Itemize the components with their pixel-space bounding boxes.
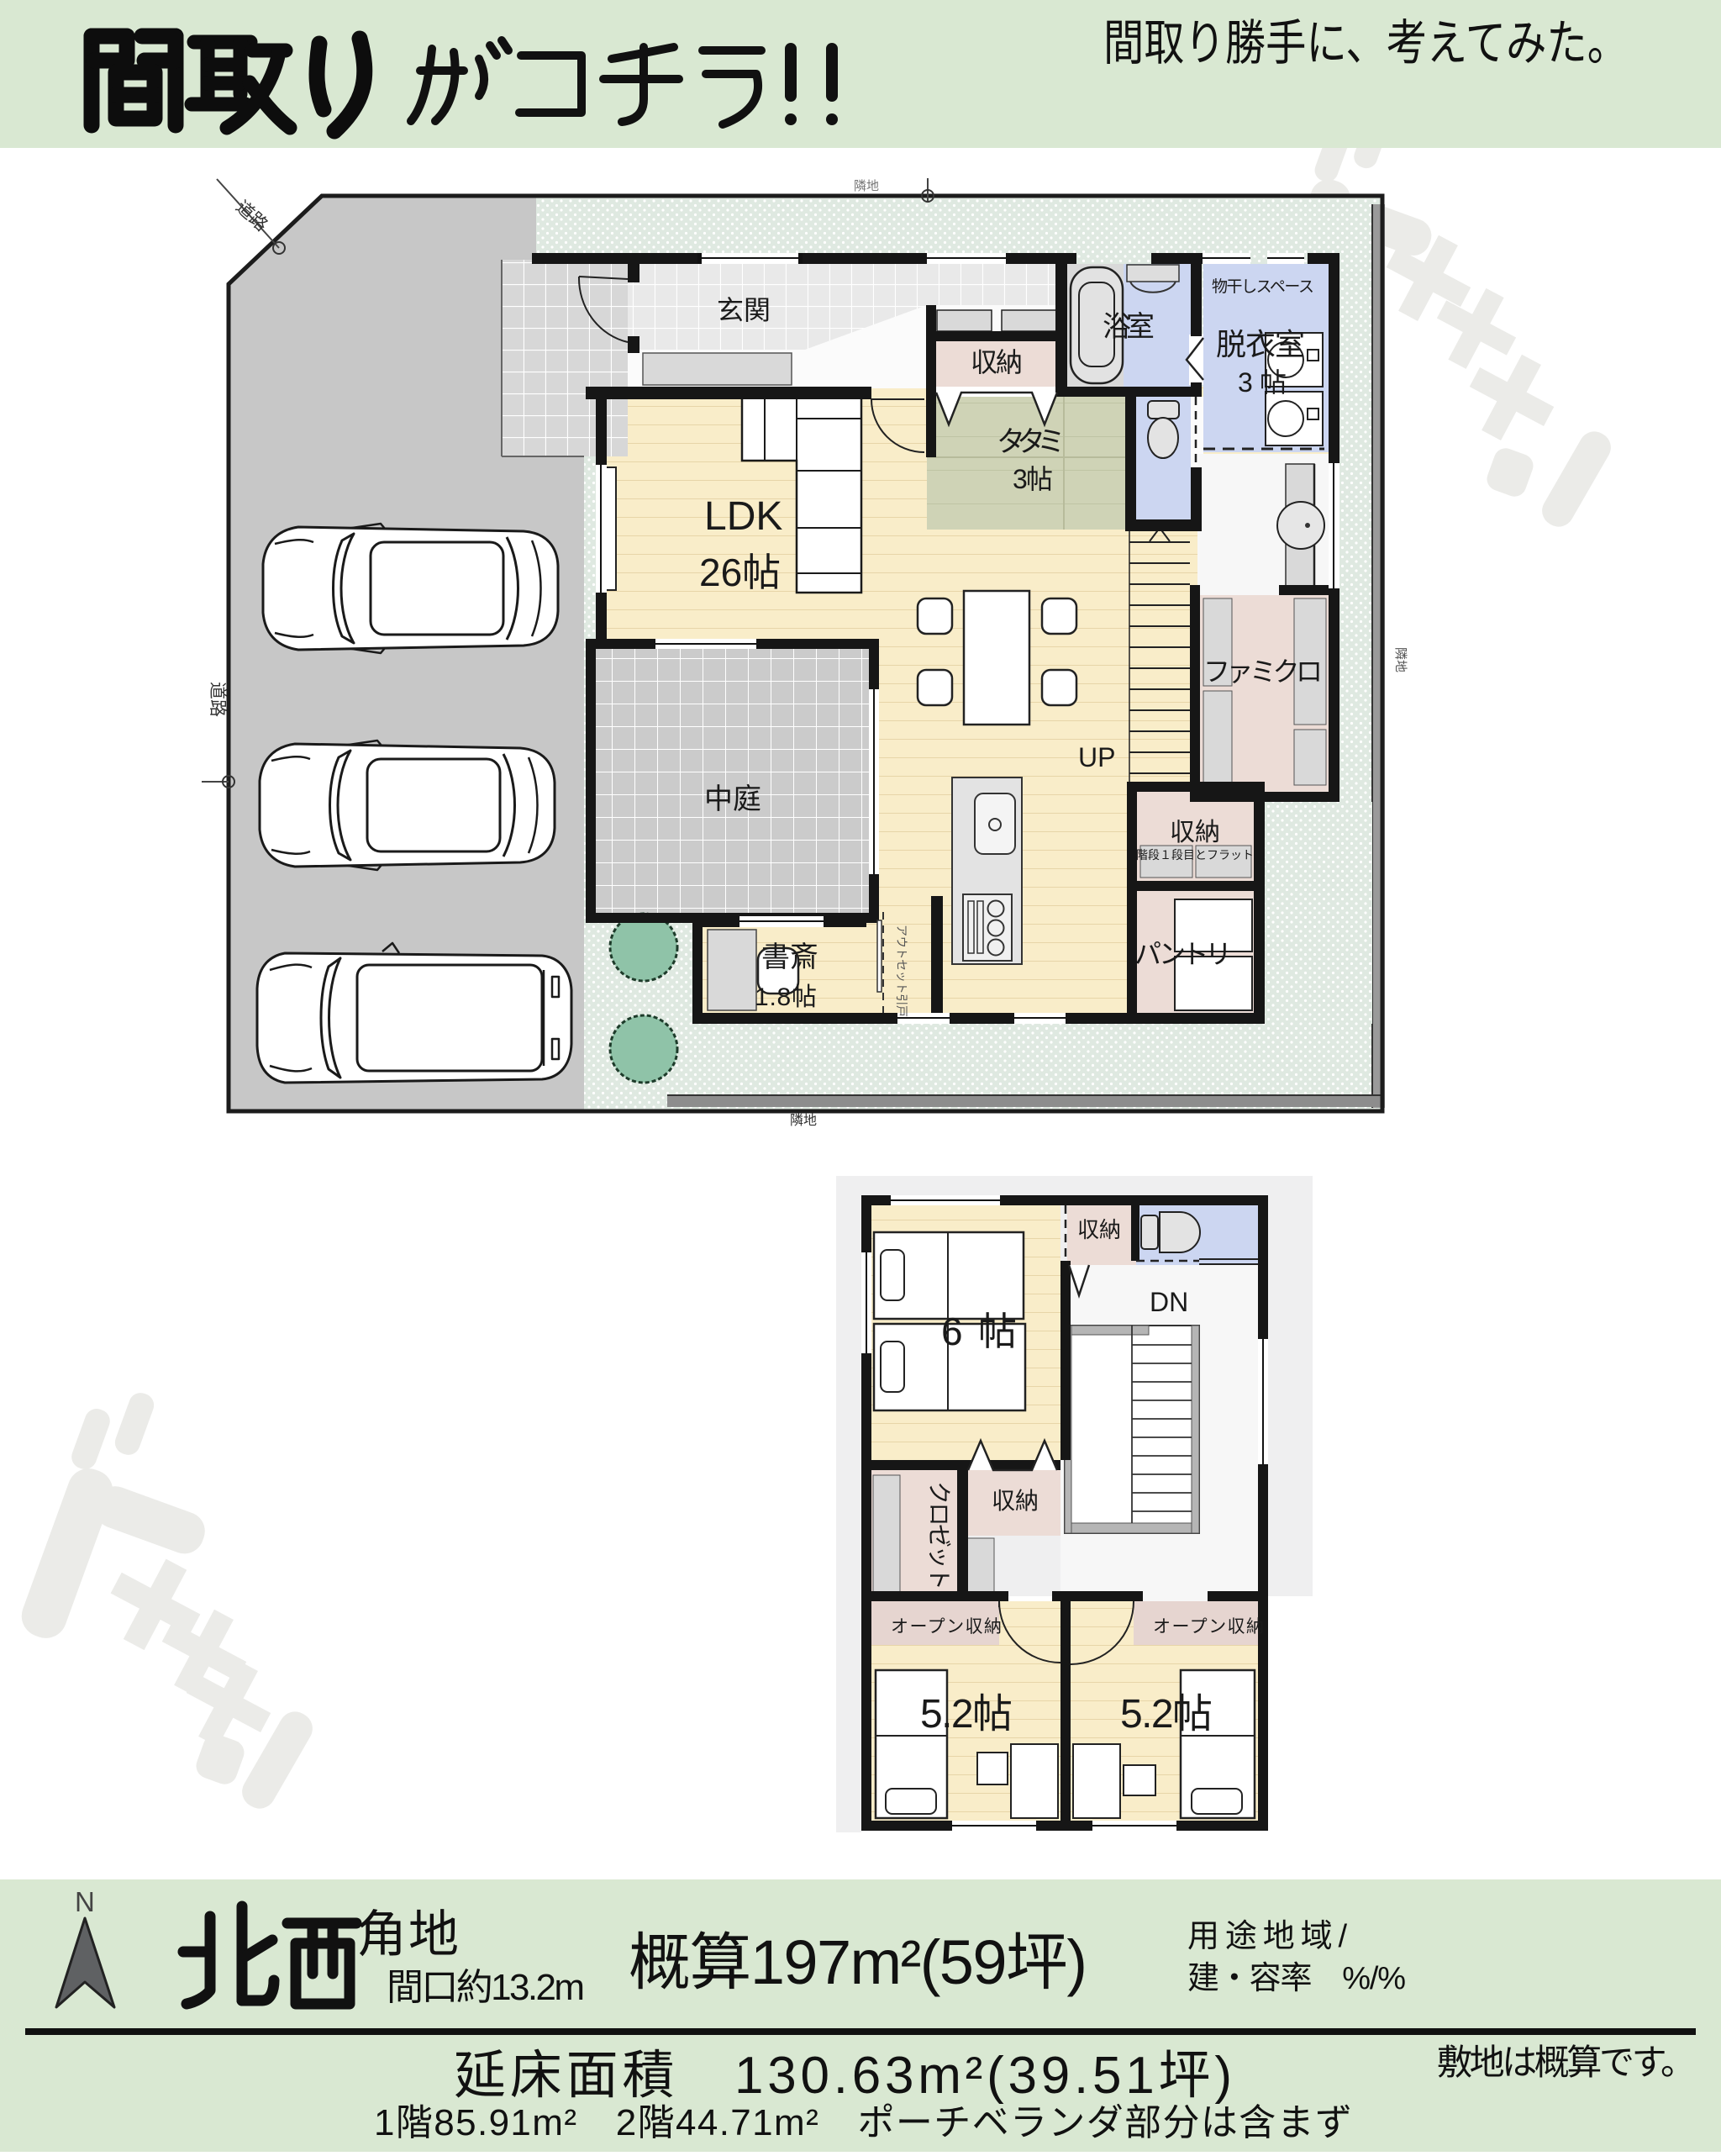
svg-text:N: N <box>75 1886 95 1917</box>
svg-text:延床面積 130.63m²(39.51坪): 延床面積 130.63m²(39.51坪) <box>454 2047 1232 2105</box>
svg-text:1.8帖: 1.8帖 <box>755 983 817 1011</box>
svg-text:26帖: 26帖 <box>699 551 781 594</box>
svg-text:道路: 道路 <box>208 682 227 717</box>
svg-text:5.2帖: 5.2帖 <box>920 1692 1013 1737</box>
svg-text:UP: UP <box>1078 742 1115 772</box>
svg-text:浴室: 浴室 <box>1103 311 1155 343</box>
svg-text:収納: 収納 <box>992 1488 1039 1514</box>
svg-text:脱衣室: 脱衣室 <box>1216 327 1305 361</box>
svg-text:隣地: 隣地 <box>1393 647 1408 672</box>
svg-text:隣地: 隣地 <box>790 1113 817 1128</box>
svg-text:概算197m²(59坪): 概算197m²(59坪) <box>629 1927 1087 1997</box>
svg-text:5.2帖: 5.2帖 <box>1120 1692 1213 1737</box>
svg-text:中庭: 中庭 <box>704 783 761 815</box>
svg-text:収納: 収納 <box>1170 819 1220 846</box>
svg-text:パントリ: パントリ <box>1134 939 1232 969</box>
svg-text:3帖: 3帖 <box>1238 367 1287 398</box>
svg-text:階段１段目とフラット: 階段１段目とフラット <box>1136 848 1254 862</box>
svg-text:敷地は概算です。: 敷地は概算です。 <box>1437 2043 1696 2082</box>
svg-text:オープン収納: オープン収納 <box>891 1617 1002 1637</box>
svg-text:DN: DN <box>1150 1287 1188 1317</box>
svg-text:1階85.91m² 2階44.71m² ポーチベランダ部分は: 1階85.91m² 2階44.71m² ポーチベランダ部分は含まず <box>374 2102 1352 2143</box>
svg-text:収納: 収納 <box>971 347 1023 377</box>
svg-text:玄関: 玄関 <box>717 295 771 325</box>
svg-text:間口約13.2m: 間口約13.2m <box>387 1967 585 2008</box>
svg-text:ファミクロ: ファミクロ <box>1203 656 1323 687</box>
svg-text:クロゼット: クロゼット <box>926 1481 952 1590</box>
svg-text:LDK: LDK <box>704 494 782 539</box>
svg-text:隣地: 隣地 <box>854 179 879 193</box>
svg-text:オープン収納: オープン収納 <box>1153 1617 1264 1637</box>
svg-text:建・容率 %/%: 建・容率 %/% <box>1187 1961 1406 1996</box>
svg-text:6帖: 6帖 <box>941 1310 1017 1353</box>
svg-text:物干しスペース: 物干しスペース <box>1212 277 1314 296</box>
svg-text:収納: 収納 <box>1077 1217 1121 1242</box>
svg-text:3帖: 3帖 <box>1013 464 1053 494</box>
svg-text:間取り勝手に、考えてみた。: 間取り勝手に、考えてみた。 <box>1103 16 1628 71</box>
svg-text:アウトセット引戸: アウトセット引戸 <box>895 925 908 1017</box>
svg-text:書斎: 書斎 <box>761 941 818 973</box>
svg-text:タタミ: タタミ <box>997 426 1066 458</box>
svg-text:用途地域/: 用途地域/ <box>1187 1919 1347 1954</box>
